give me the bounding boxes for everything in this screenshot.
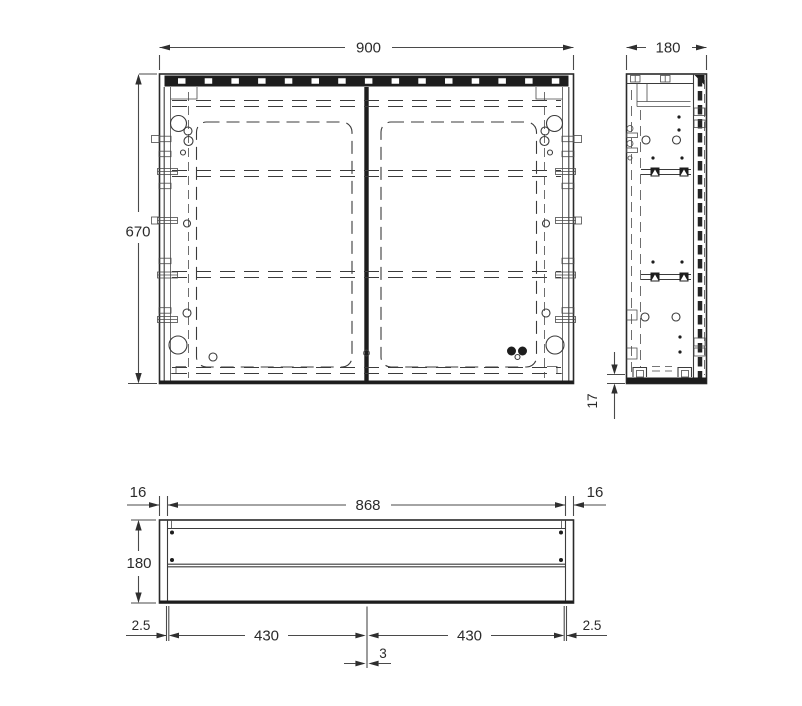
dim-plan-right-panel: 16 <box>587 484 604 501</box>
dim-plan-right-reveal: 2.5 <box>583 618 602 633</box>
front-view: 900 670 <box>125 40 581 384</box>
side-left-fittings <box>627 126 638 360</box>
dim-plan-depth: 180 <box>126 555 151 572</box>
front-height-dimension: 670 <box>125 74 157 384</box>
dim-front-width: 900 <box>356 40 381 57</box>
dim-plan-left-panel: 16 <box>130 484 147 501</box>
side-bottom-fittings <box>633 367 692 378</box>
plan-carcass <box>160 520 574 603</box>
front-carcass <box>160 74 574 384</box>
door-outline-left <box>197 122 353 367</box>
side-depth-dimension: 180 <box>627 40 707 71</box>
dim-plan-inner-width: 868 <box>355 497 380 514</box>
front-width-dimension: 900 <box>160 40 574 71</box>
technical-drawing-canvas: 900 670 <box>0 0 802 706</box>
dim-front-height: 670 <box>125 224 150 241</box>
side-bottom-edge <box>627 378 707 384</box>
plan-front-edge <box>160 601 574 604</box>
side-bottom-gap-dimension: 17 <box>585 352 625 419</box>
dim-plan-left-door: 430 <box>254 628 279 645</box>
side-carcass <box>627 74 707 384</box>
plan-width-dimensions: 868 16 16 <box>127 484 606 516</box>
dim-plan-left-reveal: 2.5 <box>132 618 151 633</box>
front-center-divider <box>364 87 368 381</box>
dim-plan-center-gap: 3 <box>379 646 387 661</box>
plan-view: 868 16 16 180 2.5 430 <box>126 484 607 668</box>
side-view: 180 <box>585 40 707 420</box>
dim-side-depth: 180 <box>655 40 680 57</box>
front-bottom-edge <box>160 381 574 384</box>
drawing-svg: 900 670 <box>0 0 802 706</box>
plan-door-dimensions: 2.5 430 430 2.5 3 <box>126 606 607 668</box>
side-holes-and-shelves <box>641 108 705 356</box>
plan-depth-dimension: 180 <box>126 520 156 603</box>
door-outline-right <box>381 122 537 367</box>
dim-side-bottom-gap: 17 <box>585 393 600 408</box>
dim-plan-right-door: 430 <box>457 628 482 645</box>
